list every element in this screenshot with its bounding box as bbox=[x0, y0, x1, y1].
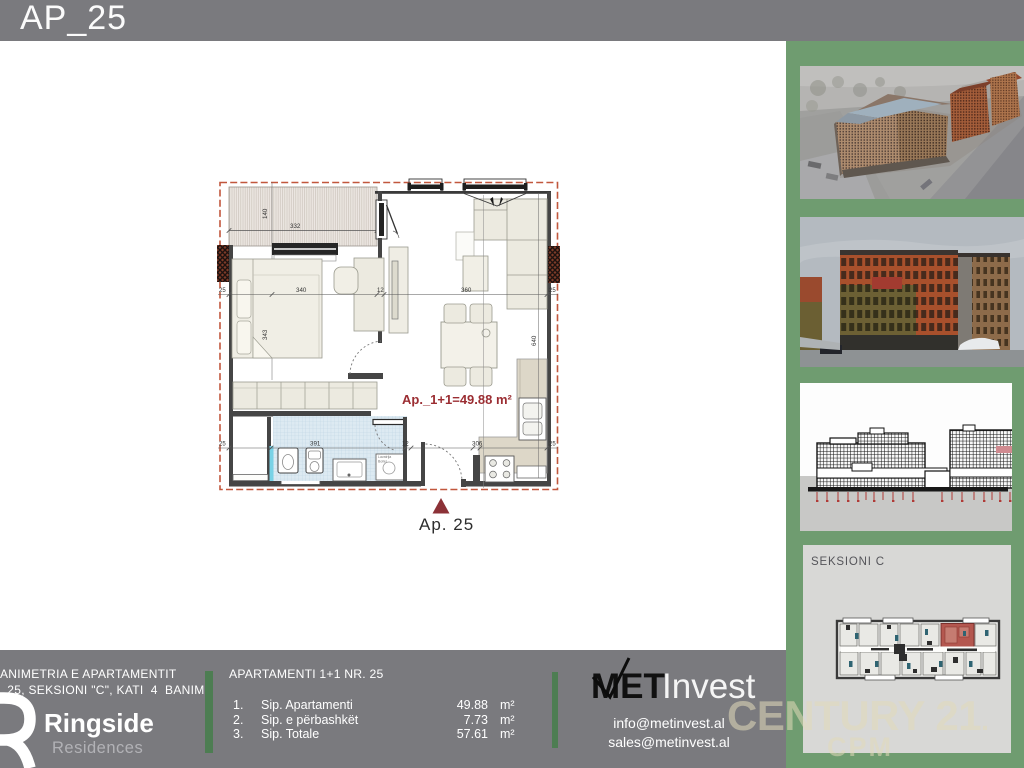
svg-text:Ap._1+1=49.88 m²: Ap._1+1=49.88 m² bbox=[402, 392, 513, 407]
svg-text:25: 25 bbox=[549, 442, 556, 448]
svg-text:340: 340 bbox=[296, 287, 307, 294]
svg-text:640: 640 bbox=[531, 335, 538, 346]
svg-text:360: 360 bbox=[461, 287, 472, 294]
svg-text:391: 391 bbox=[310, 441, 321, 448]
svg-text:Lavatrija: Lavatrija bbox=[378, 455, 391, 459]
svg-text:25: 25 bbox=[219, 442, 226, 448]
svg-text:25: 25 bbox=[219, 288, 226, 294]
svg-text:343: 343 bbox=[262, 329, 269, 340]
svg-text:25: 25 bbox=[549, 288, 556, 294]
svg-text:306: 306 bbox=[472, 441, 483, 448]
svg-text:332: 332 bbox=[290, 223, 301, 230]
svg-text:Boiler: Boiler bbox=[378, 460, 388, 464]
svg-text:140: 140 bbox=[262, 208, 269, 219]
svg-text:12: 12 bbox=[377, 288, 384, 294]
svg-text:Ap. 25: Ap. 25 bbox=[419, 515, 474, 534]
svg-text:12: 12 bbox=[402, 442, 409, 448]
